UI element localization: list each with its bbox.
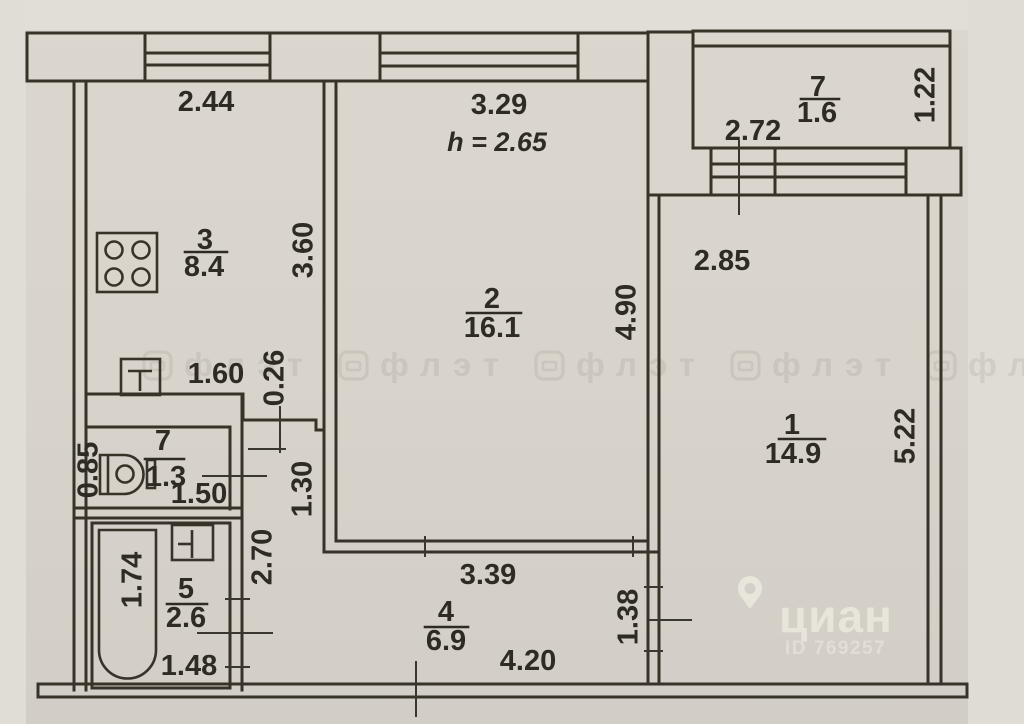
svg-text:1.22: 1.22 [910,67,942,123]
svg-text:ID 769257: ID 769257 [785,638,886,659]
svg-text:6.9: 6.9 [426,625,466,657]
svg-text:флэт: флэт [380,346,511,383]
svg-text:3.29: 3.29 [471,89,527,121]
svg-text:1.38: 1.38 [613,589,645,645]
svg-text:h = 2.65: h = 2.65 [447,127,548,157]
svg-text:флэт: флэт [576,346,707,383]
svg-text:14.9: 14.9 [765,438,821,470]
svg-text:2.44: 2.44 [178,86,234,118]
svg-text:8.4: 8.4 [184,251,224,283]
svg-text:4: 4 [438,596,454,628]
svg-text:7: 7 [155,425,171,457]
svg-text:2.72: 2.72 [725,115,781,147]
svg-text:флэт: флэт [968,346,1024,383]
svg-text:3.60: 3.60 [288,222,320,278]
svg-text:1.60: 1.60 [188,358,244,390]
svg-text:2: 2 [484,283,500,315]
svg-text:1.3: 1.3 [146,461,186,493]
svg-text:4.90: 4.90 [611,284,643,340]
svg-text:2.70: 2.70 [247,529,279,585]
svg-text:5.22: 5.22 [890,408,922,464]
svg-text:1.48: 1.48 [161,650,217,682]
svg-text:0.26: 0.26 [259,350,291,406]
svg-text:2.85: 2.85 [694,245,750,277]
svg-text:2.6: 2.6 [166,602,206,634]
svg-text:16.1: 16.1 [464,312,520,344]
svg-text:0.85: 0.85 [73,442,105,498]
svg-text:флэт: флэт [772,346,903,383]
svg-text:4.20: 4.20 [500,645,556,677]
svg-text:1.30: 1.30 [287,461,319,517]
svg-text:циан: циан [779,590,893,642]
svg-text:1.74: 1.74 [117,552,149,608]
svg-text:5: 5 [178,573,194,605]
svg-text:3.39: 3.39 [460,559,516,591]
svg-text:1.6: 1.6 [797,97,837,129]
svg-text:1: 1 [784,409,800,441]
